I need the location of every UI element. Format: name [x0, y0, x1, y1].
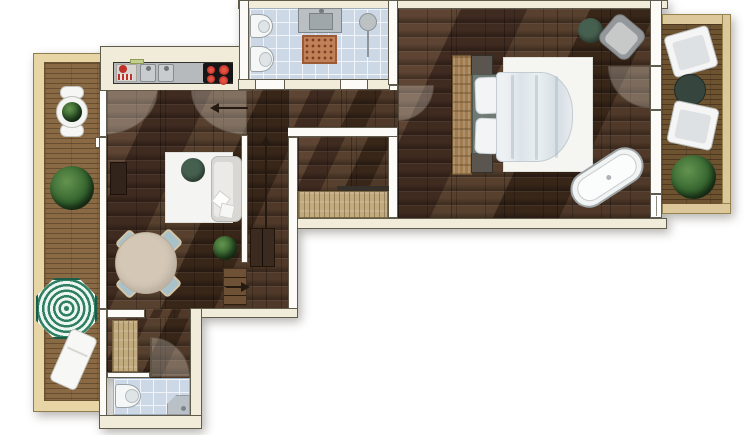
balcony-door-leaf	[650, 66, 662, 110]
corridor-west-wall	[241, 135, 248, 263]
bistro-plant	[62, 102, 82, 122]
bidet-bowl	[258, 20, 270, 33]
bedroom-left-wall-upper	[388, 0, 398, 85]
bedroom-bottom-wall	[288, 218, 667, 229]
dining-plant	[213, 236, 237, 260]
toilet-main-seat	[259, 52, 272, 67]
lounger-fold-line	[67, 347, 88, 358]
balcony-chair-bottom	[666, 100, 720, 152]
red-pot	[119, 65, 127, 73]
balcony-plant	[671, 155, 716, 199]
living-left-wall	[99, 137, 107, 309]
nightstand-top	[471, 55, 493, 75]
toilet-lower-seat	[125, 389, 139, 403]
floor-plan	[0, 0, 754, 435]
bedroom-right-wall-upper	[650, 0, 662, 66]
vanity-faucet	[319, 9, 324, 13]
kitchen-pass-arrow-head	[210, 103, 219, 113]
dining-table	[115, 232, 177, 294]
lower-left-wall	[99, 309, 107, 429]
bathroom-main-left-wall	[239, 0, 249, 90]
floor-plan-canvas	[0, 0, 754, 435]
red-plates	[118, 74, 133, 80]
faucet-left	[146, 66, 151, 71]
bathroom-main-door-threshold-1	[255, 79, 285, 90]
entry-step-arrow-head	[241, 282, 250, 292]
coat-rod	[337, 186, 389, 191]
lower-right-wall	[190, 308, 202, 429]
lower-wardrobe	[112, 320, 138, 372]
vanity-sink	[309, 13, 333, 30]
nightstand-bottom	[471, 153, 493, 173]
entrance-wardrobe	[298, 191, 388, 218]
balcony-chair-top-cushion	[672, 34, 711, 71]
bedroom-right-wall-mid	[650, 110, 662, 194]
corridor-cabinet	[250, 228, 275, 267]
sofa-pillow-2	[219, 203, 236, 220]
balcony-chair-bottom-cushion	[674, 109, 711, 144]
wall-sideboard	[110, 162, 127, 195]
terrace-plant	[50, 166, 94, 210]
duvet-fold-1	[511, 75, 514, 159]
hallway-south-wall	[280, 127, 398, 137]
burner-3	[207, 75, 215, 83]
bedroom-window-glass-line	[656, 196, 657, 216]
headboard-board	[452, 55, 472, 175]
terrace-door-threshold	[99, 90, 107, 137]
dining-bottom-wall	[195, 308, 298, 318]
corridor-cabinet-divider	[262, 229, 263, 266]
duvet-fold-3	[555, 76, 558, 158]
towel-dryer-stem	[367, 30, 369, 57]
duvet-fold-2	[535, 75, 538, 160]
balcony-frame-bottom	[662, 203, 731, 214]
bedroom-window	[650, 194, 662, 218]
shower-bath-door-leaf	[150, 337, 152, 377]
bath-rug	[302, 35, 337, 64]
balcony-frame-right	[722, 14, 731, 214]
hallway-floor	[288, 90, 398, 128]
duvet	[496, 72, 573, 162]
towel-dryer	[359, 13, 377, 31]
entry-step-arrow-shaft	[226, 286, 242, 288]
lower-hall-north-wall	[107, 309, 145, 318]
bathroom-main-door-threshold-2	[340, 79, 368, 90]
vanity	[298, 8, 342, 33]
stair-up-arrow-head	[261, 136, 271, 145]
shower-drain	[181, 406, 186, 411]
burner-4	[219, 76, 228, 85]
coffee-table	[181, 158, 205, 182]
bedroom-top-wall	[388, 0, 668, 9]
burner-2	[219, 65, 229, 75]
lower-bottom-wall	[99, 415, 202, 429]
lower-hall-doorway	[145, 309, 190, 318]
kitchen-pass-arrow-shaft	[218, 107, 248, 109]
faucet-right	[164, 66, 169, 71]
corridor-east-wall	[288, 137, 298, 309]
burner-1	[207, 66, 215, 74]
